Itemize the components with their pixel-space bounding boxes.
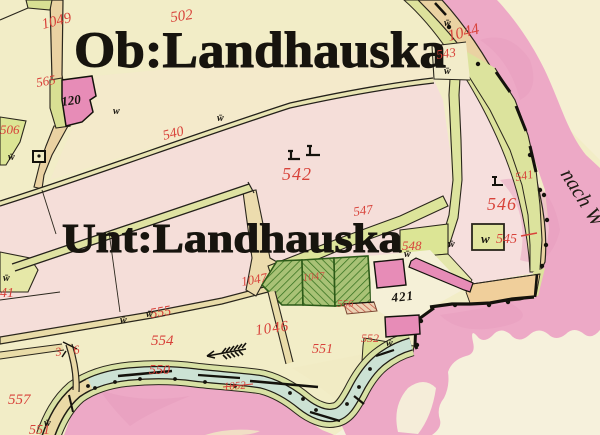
svg-text:543: 543: [435, 44, 457, 62]
svg-text:w̄: w̄: [444, 18, 451, 29]
svg-text:506: 506: [0, 122, 20, 137]
svg-text:w̄: w̄: [3, 273, 10, 284]
svg-text:546: 546: [487, 194, 517, 214]
svg-text:545: 545: [496, 232, 517, 247]
svg-text:552: 552: [361, 331, 379, 345]
svg-text:120: 120: [60, 91, 82, 109]
svg-text:547: 547: [352, 201, 374, 219]
svg-text:Unt:Landhauska: Unt:Landhauska: [62, 215, 402, 261]
svg-text:1047: 1047: [302, 270, 325, 284]
svg-text:w̄: w̄: [8, 152, 15, 163]
svg-text:421: 421: [390, 288, 415, 305]
svg-text:w: w: [481, 231, 490, 246]
svg-text:w̄: w̄: [120, 315, 127, 326]
svg-text:w̄: w̄: [44, 418, 51, 429]
svg-text:w̄: w̄: [444, 66, 451, 77]
svg-text:w̄: w̄: [217, 113, 224, 124]
svg-text:w: w: [113, 106, 120, 117]
svg-text:551: 551: [312, 342, 333, 357]
svg-text:w̄: w̄: [448, 239, 455, 250]
svg-text:554: 554: [151, 333, 174, 349]
svg-text:Ob:Landhauska: Ob:Landhauska: [74, 23, 446, 79]
svg-text:w̄: w̄: [146, 309, 153, 320]
svg-text:542: 542: [282, 164, 312, 184]
svg-text:41: 41: [0, 286, 14, 301]
svg-text:502: 502: [169, 7, 194, 26]
svg-text:557: 557: [8, 392, 32, 408]
svg-text:550: 550: [149, 363, 170, 378]
svg-text:w̄: w̄: [404, 249, 411, 260]
svg-text:w̄: w̄: [386, 338, 393, 349]
svg-text:556: 556: [337, 298, 354, 310]
